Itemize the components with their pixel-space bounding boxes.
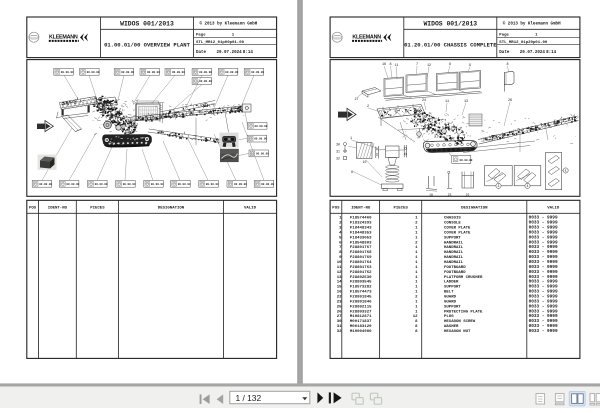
svg-text:18: 18 [429,193,433,197]
svg-text:PIECES: PIECES [393,207,408,211]
svg-text:32: 32 [336,156,340,160]
svg-text:M10812871: M10812871 [350,315,372,319]
svg-text:PLUG: PLUG [444,315,454,319]
svg-text:00.00.00: 00.00.00 [123,183,136,186]
svg-text:HANDRAIL: HANDRAIL [444,251,464,255]
svg-text:IDENT-NO: IDENT-NO [48,207,68,211]
svg-text:00.00.00: 00.00.00 [178,183,191,186]
svg-text:14: 14 [337,281,342,285]
svg-text:WIDOS 001/2013: WIDOS 001/2013 [423,21,477,28]
svg-text:© 2013 by Kleemann GmbH: © 2013 by Kleemann GmbH [503,21,561,26]
svg-text:27: 27 [354,98,358,102]
svg-text:11: 11 [337,266,342,270]
svg-text:DESIGNATION: DESIGNATION [158,207,185,211]
svg-text:8:14: 8:14 [546,51,557,55]
svg-text:12: 12 [337,271,342,275]
svg-text:31: 31 [336,149,340,153]
svg-text:30: 30 [337,320,342,324]
svg-text:01.20.01/00 CHASSIS COMPLETE: 01.20.01/00 CHASSIS COMPLETE [404,42,497,49]
svg-text:00.00.00: 00.00.00 [121,71,134,74]
svg-text:10: 10 [363,160,367,164]
svg-text:GUARD: GUARD [444,295,457,299]
svg-text:HANDRAIL: HANDRAIL [444,246,464,250]
svg-text:16: 16 [382,63,386,67]
svg-text:GUARD: GUARD [444,300,457,304]
svg-text:STL_MR12_01p20p01-00: STL_MR12_01p20p01-00 [499,41,548,45]
svg-text:F18573282: F18573282 [350,286,372,290]
svg-text:00.00.00: 00.00.00 [255,125,268,128]
svg-text:HANDRAIL: HANDRAIL [444,261,464,265]
svg-text:SUPPORT: SUPPORT [444,286,461,290]
svg-text:HEXAGON SCREW: HEXAGON SCREW [444,320,476,324]
svg-text:M10004900: M10004900 [350,330,372,334]
svg-text:© 2013 by Kleemann GmbH: © 2013 by Kleemann GmbH [199,21,257,26]
svg-text:F18448343: F18448343 [350,226,372,230]
svg-text:SUPPORT: SUPPORT [444,236,461,240]
svg-text:01.00.01/00 OVERVIEW PLANT: 01.00.01/00 OVERVIEW PLANT [104,42,191,49]
svg-text:00.00.00: 00.00.00 [234,183,247,186]
svg-text:KLEEMANN: KLEEMANN [49,35,78,41]
svg-text:CHASSIS: CHASSIS [444,217,461,221]
svg-text:23: 23 [448,193,452,197]
svg-text:F28801763: F28801763 [350,266,372,270]
svg-text:1: 1 [350,137,352,141]
svg-text:F18548803: F18548803 [350,241,372,245]
svg-text:00.00.00: 00.00.00 [66,183,79,186]
svg-text:WASHER: WASHER [444,325,459,329]
svg-text:00.00.00: 00.00.00 [206,183,219,186]
svg-text:F28801769: F28801769 [350,256,372,260]
svg-text:15: 15 [337,286,342,290]
svg-text:F28801846: F28801846 [350,300,372,304]
svg-text:13: 13 [337,276,342,280]
svg-text:WIDOS 001/2013: WIDOS 001/2013 [120,21,174,28]
svg-text:8:14: 8:14 [243,51,254,55]
svg-text:9: 9 [469,64,471,68]
svg-text:F18574473: F18574473 [350,291,372,295]
svg-text:COVER PLATE: COVER PLATE [444,231,471,235]
svg-text:5: 5 [565,169,567,173]
svg-text:COVER PLATE: COVER PLATE [444,226,471,230]
svg-text:29.07.2024: 29.07.2024 [217,51,243,55]
svg-text:FOOTBOARD: FOOTBOARD [444,271,466,275]
svg-text:F28801762: F28801762 [350,271,372,275]
svg-text:F18574460: F18574460 [350,217,372,221]
svg-text:HANDRAIL: HANDRAIL [444,241,464,245]
svg-text:POS: POS [29,207,37,211]
svg-text:HANDRAIL: HANDRAIL [444,256,464,260]
svg-text:Date: Date [196,51,207,55]
svg-text:00.00.00: 00.00.00 [256,153,269,156]
svg-text:LADDER: LADDER [444,281,459,285]
svg-text:F28801764: F28801764 [350,261,372,265]
svg-text:0033 - 9999: 0033 - 9999 [529,329,558,334]
svg-text:Page: Page [499,33,509,37]
svg-text:27: 27 [337,315,342,319]
svg-text:00.00.00: 00.00.00 [199,71,212,74]
svg-text:26: 26 [337,310,342,314]
svg-text:FOOTBOARD: FOOTBOARD [444,266,466,270]
svg-text:VALID: VALID [244,207,257,211]
svg-text:HEXAGON NUT: HEXAGON NUT [444,330,471,334]
svg-text:F28801768: F28801768 [350,251,372,255]
svg-text:32: 32 [337,330,342,334]
svg-text:F28803545: F28803545 [350,281,372,285]
svg-text:3: 3 [498,184,500,188]
svg-text:00.00.00: 00.00.00 [39,183,52,186]
svg-text:POS: POS [332,207,340,211]
svg-text:F18324393: F18324393 [350,222,372,226]
svg-text:23: 23 [337,300,342,304]
svg-text:F18433053: F18433053 [350,236,372,240]
svg-text:M00183120: M00183120 [350,325,372,329]
svg-text:00.00.00: 00.00.00 [172,71,185,74]
svg-text:SUPPORT: SUPPORT [444,305,461,309]
svg-text:VALID: VALID [547,207,560,211]
svg-text:F28801845: F28801845 [350,295,372,299]
svg-text:00.00.00: 00.00.00 [254,138,267,141]
svg-text:BELT: BELT [444,291,454,295]
svg-text:STL_MR12_01p00p01-00: STL_MR12_01p00p01-00 [196,41,245,45]
svg-text:00.00.00: 00.00.00 [225,71,238,74]
svg-text:22: 22 [337,295,342,299]
svg-text:31: 31 [337,325,342,329]
svg-text:4: 4 [527,184,529,188]
svg-text:PIECES: PIECES [90,207,105,211]
svg-text:DESIGNATION: DESIGNATION [461,207,488,211]
svg-text:12: 12 [413,315,418,319]
svg-text:00.00.00: 00.00.00 [251,71,264,74]
svg-text:Date: Date [499,51,510,55]
svg-text:M00171837: M00171837 [350,320,372,324]
svg-text:00.00.00: 00.00.00 [261,183,274,186]
svg-text:10: 10 [337,261,342,265]
svg-text:F28801767: F28801767 [350,246,372,250]
svg-text:PROTECTING PLATE: PROTECTING PLATE [444,310,483,314]
svg-text:Page: Page [196,33,206,37]
svg-text:00.00.00: 00.00.00 [61,71,74,74]
svg-text:13: 13 [464,100,468,104]
svg-text:29.07.2024: 29.07.2024 [520,51,546,55]
svg-text:30: 30 [336,142,340,146]
svg-text:25: 25 [337,305,342,309]
svg-text:2: 2 [367,105,369,109]
svg-text:22: 22 [466,193,470,197]
svg-text:CONSOLE: CONSOLE [444,222,461,226]
svg-text:PLATFORM CRUSHER: PLATFORM CRUSHER [444,276,483,280]
svg-text:F18448353: F18448353 [350,231,372,235]
svg-text:F28803327: F28803327 [350,310,372,314]
svg-text:00.00.00: 00.00.00 [151,183,164,186]
svg-text:F28802530: F28802530 [350,276,372,280]
svg-text:00.00.00: 00.00.00 [147,71,160,74]
svg-text:1 / 132: 1 / 132 [236,393,262,403]
svg-text:16: 16 [337,291,342,295]
svg-text:00.00.00: 00.00.00 [95,183,108,186]
svg-text:00.00.00: 00.00.00 [87,71,100,74]
svg-text:F28802115: F28802115 [350,305,372,309]
svg-text:00.00.00: 00.00.00 [460,159,473,162]
svg-text:KLEEMANN: KLEEMANN [352,35,381,41]
svg-text:00.00.00: 00.00.00 [199,80,212,83]
svg-text:9: 9 [351,171,353,175]
svg-text:IDENT-NO: IDENT-NO [351,207,371,211]
